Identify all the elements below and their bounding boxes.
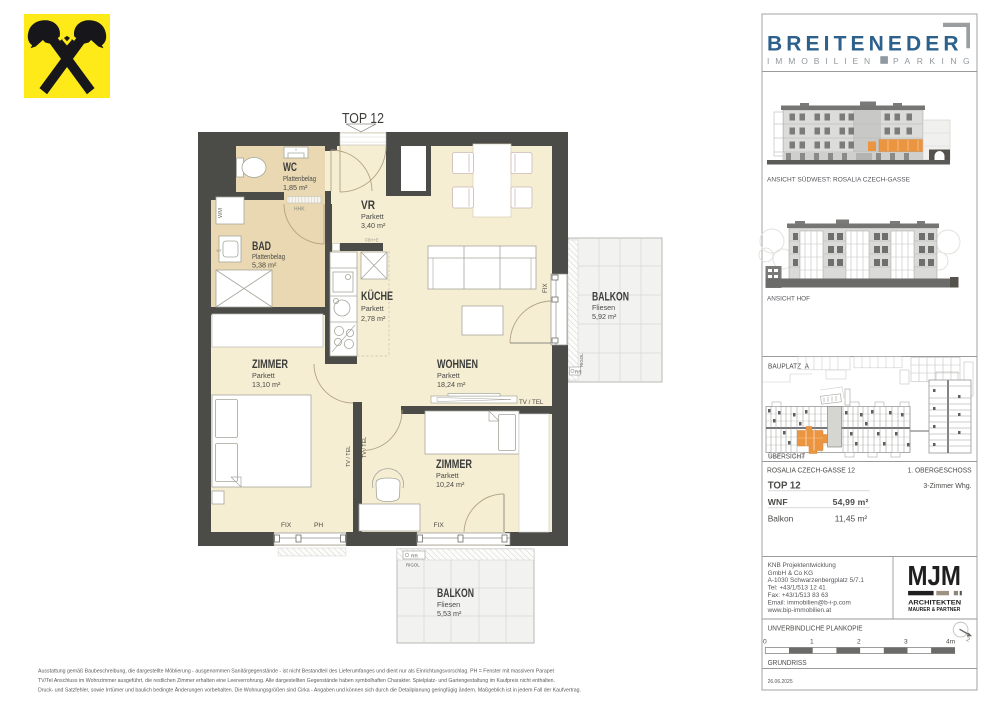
svg-text:BREITENEDER: BREITENEDER — [767, 33, 963, 56]
svg-text:Email: immobilien@b-i-p.com: Email: immobilien@b-i-p.com — [768, 600, 851, 607]
svg-text:ARCHITEKTEN: ARCHITEKTEN — [908, 599, 961, 606]
svg-text:1,85 m²: 1,85 m² — [283, 183, 308, 192]
svg-text:WNF: WNF — [768, 497, 788, 507]
svg-text:Parkett: Parkett — [252, 371, 275, 380]
svg-text:ÜBERSICHT: ÜBERSICHT — [768, 452, 806, 461]
svg-text:TOP 12: TOP 12 — [768, 480, 801, 491]
svg-text:10,24 m²: 10,24 m² — [436, 480, 465, 489]
svg-text:1. OBERGESCHOSS: 1. OBERGESCHOSS — [908, 467, 972, 474]
svg-text:ROSALIA CZECH-GASSE 12: ROSALIA CZECH-GASSE 12 — [767, 467, 855, 474]
svg-text:Parkett: Parkett — [436, 471, 459, 480]
svg-text:11,45 m²: 11,45 m² — [835, 513, 868, 523]
svg-text:5,53 m²: 5,53 m² — [437, 609, 462, 618]
svg-text:Plattenbelag: Plattenbelag — [283, 174, 316, 183]
svg-text:TV / TEL: TV / TEL — [519, 399, 544, 406]
svg-text:Balkon: Balkon — [768, 513, 794, 523]
svg-text:RR: RR — [411, 554, 418, 560]
svg-text:BAD: BAD — [252, 239, 271, 253]
svg-text:3-Zimmer Whg.: 3-Zimmer Whg. — [923, 483, 971, 490]
svg-text:BAUPLATZ A: BAUPLATZ A — [768, 362, 809, 371]
svg-text:FIX: FIX — [434, 522, 445, 529]
svg-text:RIGOL: RIGOL — [579, 353, 584, 367]
svg-text:ANSICHT HOF: ANSICHT HOF — [767, 296, 810, 303]
svg-text:www.bip-immobilien.at: www.bip-immobilien.at — [767, 607, 832, 614]
svg-text:3: 3 — [904, 639, 908, 646]
svg-text:A-1030 Schwarzenbergplatz 5/7.: A-1030 Schwarzenbergplatz 5/7.1 — [768, 577, 865, 584]
svg-text:2: 2 — [857, 639, 861, 646]
svg-text:TV / TEL: TV / TEL — [362, 437, 368, 458]
svg-text:RR: RR — [575, 370, 582, 375]
svg-text:MAURER & PARTNER: MAURER & PARTNER — [908, 607, 960, 613]
svg-text:MJM: MJM — [908, 560, 962, 591]
svg-text:Parkett: Parkett — [361, 212, 384, 221]
svg-text:2,78 m²: 2,78 m² — [361, 314, 386, 323]
svg-text:Ausstattung gemäß Baubeschreib: Ausstattung gemäß Baubeschreibung, die d… — [38, 669, 555, 675]
svg-text:Druck- und Satzfehler, sowie I: Druck- und Satzfehler, sowie Irrtümer un… — [38, 687, 581, 694]
svg-text:HHK: HHK — [294, 207, 305, 213]
svg-text:UNVERBINDLICHE PLANKOPIE: UNVERBINDLICHE PLANKOPIE — [768, 626, 863, 633]
svg-text:4m: 4m — [946, 639, 956, 646]
svg-text:FIX: FIX — [542, 283, 549, 293]
svg-text:Parkett: Parkett — [437, 371, 460, 380]
svg-text:ZIMMER: ZIMMER — [436, 457, 472, 471]
svg-text:Fliesen: Fliesen — [592, 303, 615, 312]
svg-text:WM: WM — [218, 208, 224, 218]
svg-text:1: 1 — [810, 639, 814, 646]
svg-text:PH: PH — [314, 522, 323, 529]
svg-text:Tel: +43/1/513 12 41: Tel: +43/1/513 12 41 — [768, 585, 827, 592]
svg-text:3,40 m²: 3,40 m² — [361, 221, 386, 230]
svg-text:TV / TEL: TV / TEL — [346, 446, 352, 467]
svg-text:5,38 m²: 5,38 m² — [252, 261, 277, 270]
svg-text:KNB Projektentwicklung: KNB Projektentwicklung — [768, 562, 837, 569]
svg-text:18,24 m²: 18,24 m² — [437, 380, 466, 389]
svg-text:RIGOL: RIGOL — [406, 563, 420, 568]
svg-text:BALKON: BALKON — [592, 290, 629, 304]
svg-text:26.06.2025: 26.06.2025 — [768, 679, 793, 685]
svg-text:Fliesen: Fliesen — [437, 600, 460, 609]
svg-text:GRUNDRISS: GRUNDRISS — [768, 658, 807, 667]
svg-text:FBH+E: FBH+E — [365, 238, 379, 243]
svg-text:ANSICHT SÜDWEST: ROSALIA CZECH: ANSICHT SÜDWEST: ROSALIA CZECH-GASSE — [767, 176, 910, 184]
svg-text:Fax: +43/1/513 83 63: Fax: +43/1/513 83 63 — [768, 592, 829, 599]
svg-text:WT: WT — [217, 249, 222, 253]
svg-text:BALKON: BALKON — [437, 586, 474, 600]
svg-text:KÜCHE: KÜCHE — [361, 288, 393, 303]
svg-text:VR: VR — [361, 198, 375, 212]
svg-text:5,92 m²: 5,92 m² — [592, 312, 617, 321]
svg-text:ZIMMER: ZIMMER — [252, 357, 288, 371]
svg-text:2: 2 — [965, 637, 970, 644]
svg-text:0: 0 — [763, 639, 767, 646]
svg-text:FIX: FIX — [281, 522, 292, 529]
svg-text:WC: WC — [283, 160, 297, 174]
svg-text:PARKING: PARKING — [893, 56, 976, 66]
svg-text:54,99 m²: 54,99 m² — [833, 497, 869, 507]
svg-text:13,10 m²: 13,10 m² — [252, 380, 281, 389]
svg-text:IMMOBILIEN: IMMOBILIEN — [767, 56, 876, 66]
svg-text:GmbH & Co KG: GmbH & Co KG — [768, 570, 813, 577]
svg-text:Parkett: Parkett — [361, 304, 384, 313]
svg-text:TV/Tel Anschluss im Wohnzimmer: TV/Tel Anschluss im Wohnzimmer ausgeführ… — [38, 678, 555, 684]
svg-text:WOHNEN: WOHNEN — [437, 357, 478, 371]
